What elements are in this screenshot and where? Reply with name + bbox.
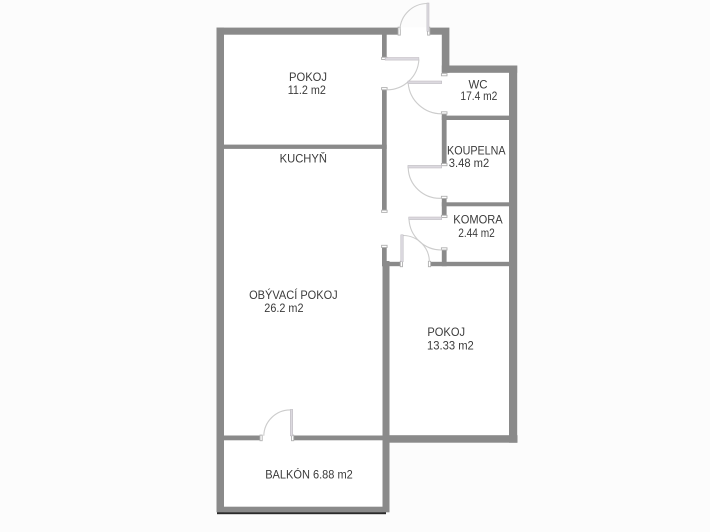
svg-text:11.2 m2: 11.2 m2: [288, 83, 326, 97]
svg-text:BALKÓN 6.88 m2: BALKÓN 6.88 m2: [265, 468, 353, 482]
svg-text:KUCHYŇ: KUCHYŇ: [280, 151, 327, 165]
svg-text:13.33 m2: 13.33 m2: [427, 339, 474, 353]
svg-text:POKOJ: POKOJ: [289, 70, 327, 84]
svg-text:POKOJ: POKOJ: [427, 325, 465, 339]
svg-text:2.44 m2: 2.44 m2: [458, 226, 495, 240]
svg-text:3.48 m2: 3.48 m2: [449, 156, 489, 170]
svg-text:KOMORA: KOMORA: [453, 212, 503, 226]
svg-text:26.2 m2: 26.2 m2: [264, 301, 303, 315]
svg-text:17.4 m2: 17.4 m2: [460, 89, 497, 103]
